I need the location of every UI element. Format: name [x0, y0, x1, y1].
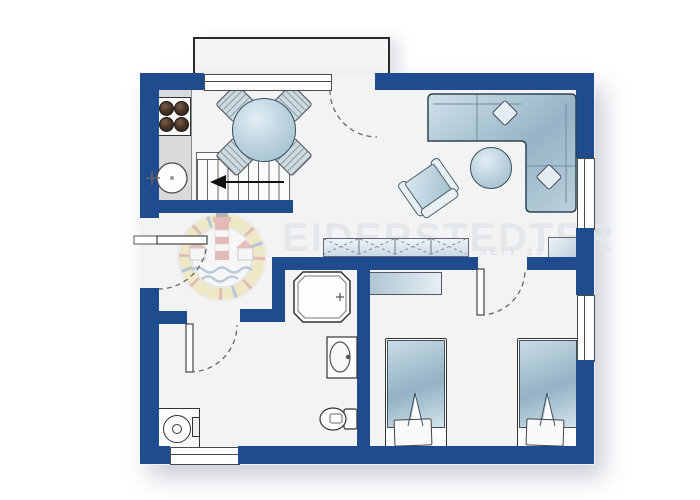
kitchen-sink	[146, 163, 187, 193]
sideboard-x-marks	[324, 238, 466, 255]
toilet	[320, 408, 357, 430]
linework-layer	[0, 0, 700, 500]
corner-sofa	[428, 94, 576, 212]
stair-arrow-icon	[210, 175, 284, 189]
corner-shower	[294, 272, 350, 322]
terrace-door-swing	[330, 90, 377, 137]
blanket-fold-line	[408, 393, 423, 426]
floor-plan-canvas: EIDERSTEDTER SEIT 19	[0, 0, 700, 500]
bedroom-door	[477, 269, 525, 315]
blanket-fold-line	[540, 393, 555, 426]
washbasin	[327, 337, 357, 378]
faucet-icon	[346, 355, 350, 359]
entrance-door	[134, 236, 207, 289]
bathroom-door	[186, 324, 237, 372]
